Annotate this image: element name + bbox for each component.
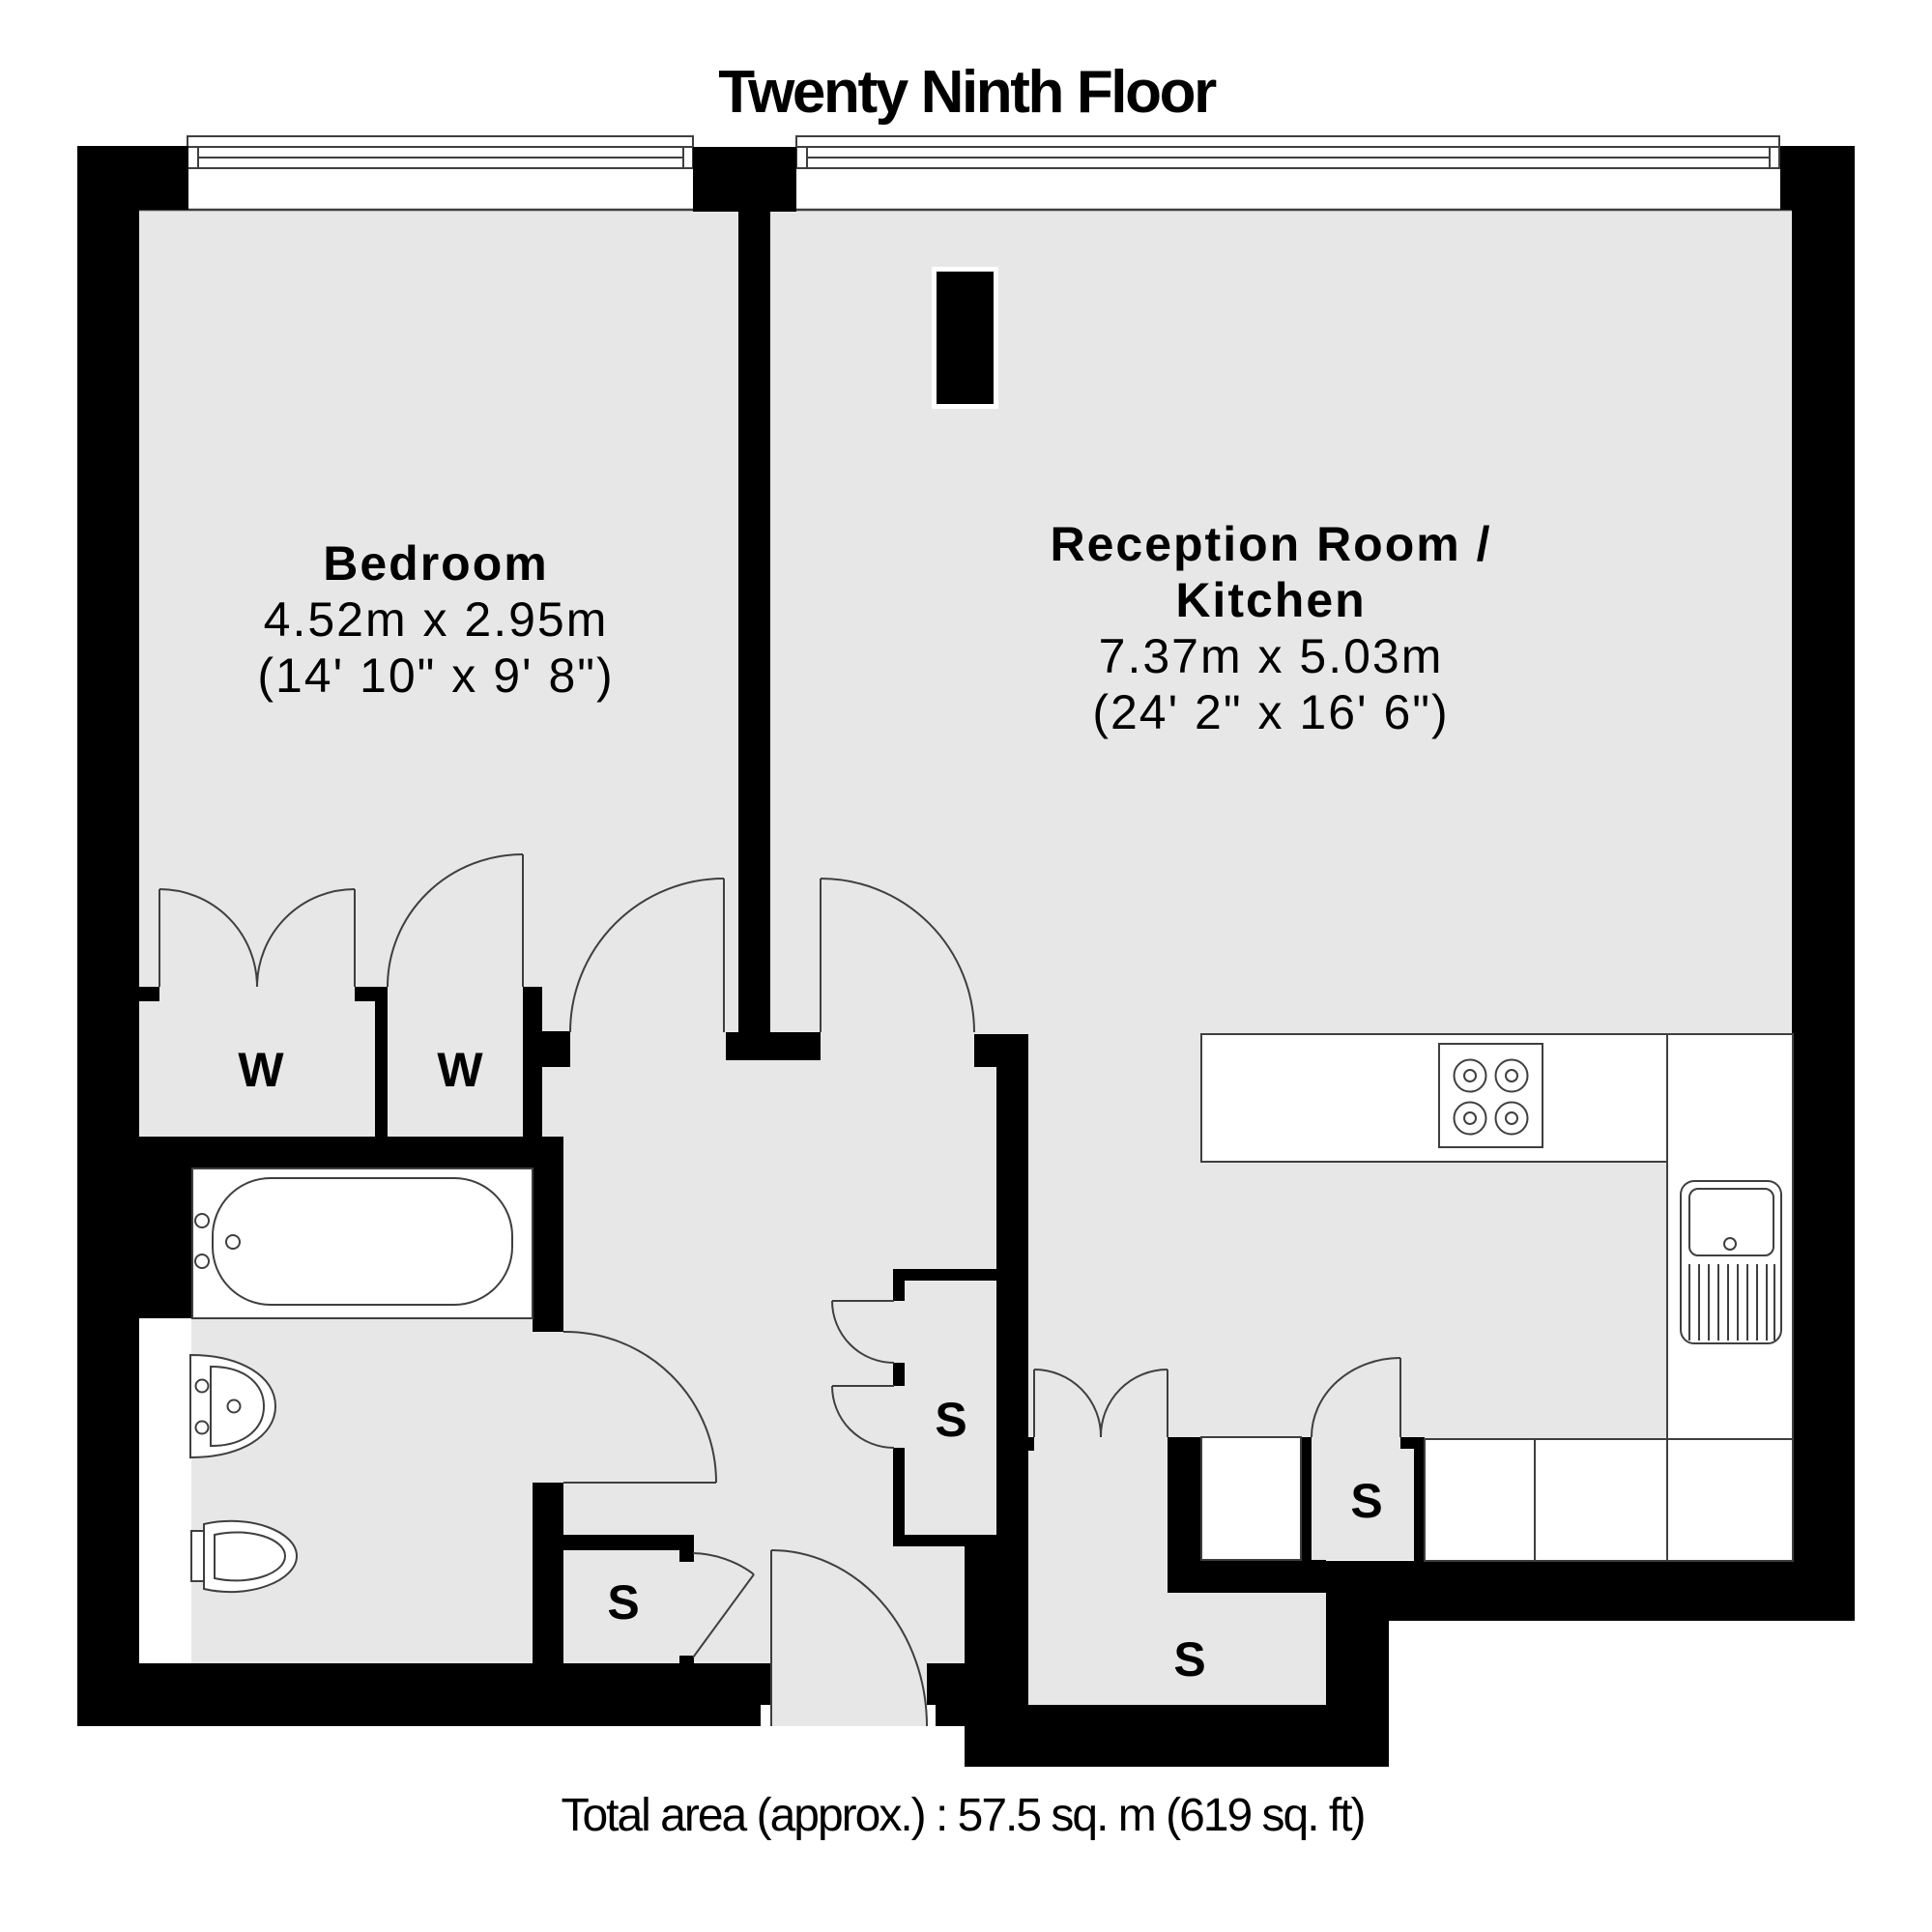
svg-text:S: S	[607, 1575, 639, 1629]
svg-text:4.52m x 2.95m: 4.52m x 2.95m	[264, 592, 609, 647]
svg-text:S: S	[935, 1393, 966, 1447]
svg-text:Bedroom: Bedroom	[323, 536, 548, 591]
svg-text:Reception Room /: Reception Room /	[1050, 517, 1491, 571]
svg-text:Kitchen: Kitchen	[1175, 573, 1366, 627]
svg-text:S: S	[1350, 1474, 1382, 1528]
svg-text:(24' 2" x 16' 6"): (24' 2" x 16' 6")	[1092, 685, 1449, 739]
svg-text:Twenty Ninth Floor: Twenty Ninth Floor	[718, 59, 1217, 126]
svg-text:(14' 10" x 9' 8"): (14' 10" x 9' 8")	[257, 649, 614, 703]
svg-text:W: W	[238, 1043, 284, 1097]
svg-text:Total area (approx.) : 57.5 sq: Total area (approx.) : 57.5 sq. m (619 s…	[561, 1790, 1364, 1841]
svg-text:7.37m x 5.03m: 7.37m x 5.03m	[1099, 629, 1444, 683]
svg-text:W: W	[437, 1043, 483, 1097]
svg-text:S: S	[1173, 1632, 1205, 1687]
